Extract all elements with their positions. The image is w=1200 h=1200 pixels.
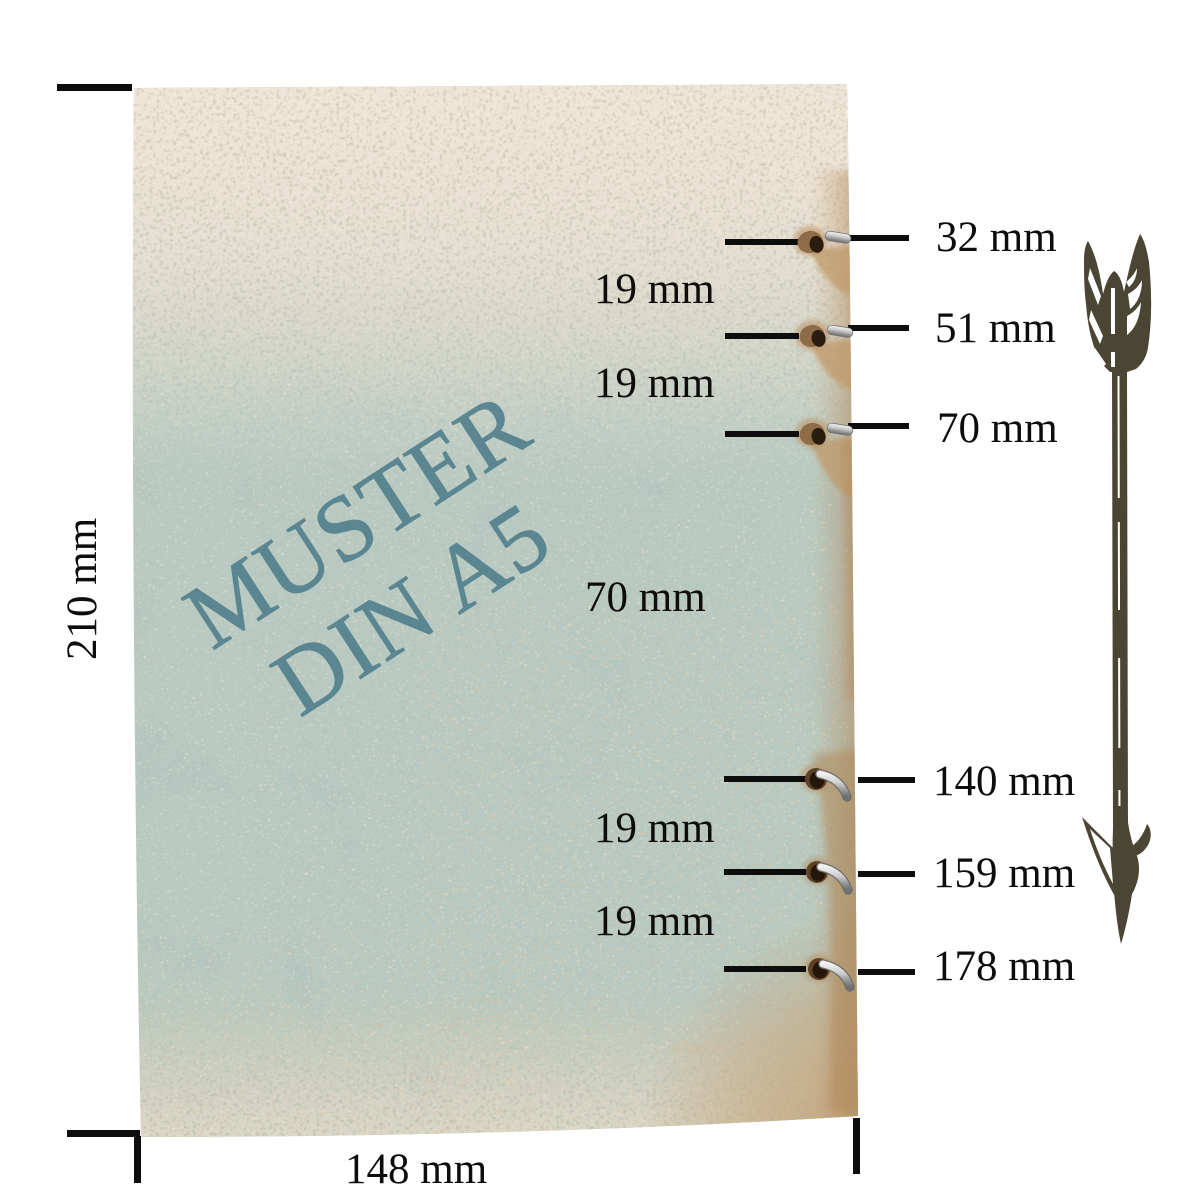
svg-text:140 mm: 140 mm xyxy=(933,758,1075,805)
svg-text:19 mm: 19 mm xyxy=(594,266,715,313)
svg-text:159 mm: 159 mm xyxy=(933,850,1075,897)
svg-text:19 mm: 19 mm xyxy=(594,360,715,407)
svg-text:19 mm: 19 mm xyxy=(594,898,715,945)
svg-text:148 mm: 148 mm xyxy=(345,1146,487,1193)
svg-text:70 mm: 70 mm xyxy=(937,405,1058,452)
svg-text:70 mm: 70 mm xyxy=(585,574,706,621)
svg-text:51 mm: 51 mm xyxy=(935,305,1056,352)
svg-text:19 mm: 19 mm xyxy=(594,805,715,852)
svg-text:32 mm: 32 mm xyxy=(936,214,1057,261)
svg-text:210 mm: 210 mm xyxy=(59,518,106,660)
svg-text:178 mm: 178 mm xyxy=(933,943,1075,990)
